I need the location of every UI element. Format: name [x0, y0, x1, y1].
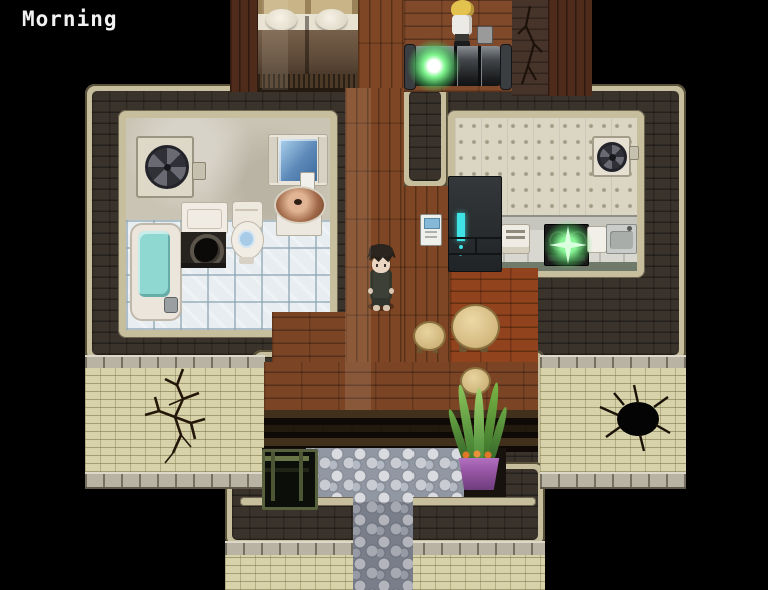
fan-blades-icon: [597, 142, 627, 172]
stool: [413, 321, 442, 354]
cobblestone-path: [353, 448, 413, 590]
bedroom-wall-left: [230, 0, 258, 92]
wall-crack: [125, 365, 235, 471]
wall-ledge-bottom: [540, 472, 686, 489]
washer-base: [181, 263, 226, 268]
toaster-slot: [506, 230, 525, 233]
player-foot: [373, 305, 380, 311]
bed-foot-shadow: [258, 88, 358, 92]
machine-band: [478, 46, 481, 86]
wall-ledge-bottom: [85, 472, 265, 489]
crate-post: [299, 452, 303, 501]
toilet: [231, 201, 262, 264]
green-glow-orb: [406, 38, 462, 94]
table-top: [451, 304, 500, 350]
wall-hole: [590, 373, 682, 465]
intercom-buttons: [425, 236, 437, 238]
intercom-screen: [424, 218, 440, 229]
player-eye: [376, 264, 378, 267]
sink-drain: [294, 199, 302, 205]
fridge-divider: [449, 253, 501, 255]
top-wall-cracked: [512, 0, 548, 96]
exterior-wall-right: [540, 355, 686, 485]
glowing-machine[interactable]: [404, 42, 510, 90]
washing-machine: [181, 202, 226, 268]
intercom-panel: [420, 214, 442, 246]
fan-cord: [192, 162, 206, 180]
washer-top: [181, 202, 228, 234]
pillow: [316, 9, 347, 30]
bedroom-floor-strip: [358, 0, 404, 92]
bathtub-water: [138, 231, 170, 297]
bathroom-vent-fan: [136, 136, 194, 198]
wall-column-hall-kitchen: [402, 84, 448, 188]
beds: [258, 0, 358, 92]
intercom-buttons: [425, 231, 437, 233]
bathtub-faucet: [164, 297, 178, 313]
plant-pot: [456, 458, 502, 490]
fridge-light-dot: [459, 245, 463, 249]
kitchen-sink: [606, 224, 637, 254]
path-shade: [353, 502, 413, 590]
player-hand: [368, 288, 373, 294]
top-wall-right: [548, 0, 592, 96]
sink-basin: [610, 231, 633, 249]
player-character[interactable]: [364, 244, 398, 312]
refrigerator: [448, 176, 502, 272]
potted-plant: [452, 382, 506, 494]
player-hair-top: [369, 244, 393, 257]
pillow: [266, 9, 297, 30]
player-eye: [384, 264, 386, 267]
player-body: [370, 270, 392, 300]
mirror-side-panel: [318, 137, 327, 183]
stool-top: [413, 321, 446, 351]
fan-blades-icon: [145, 145, 189, 189]
game-viewport[interactable]: Morning: [0, 0, 768, 590]
time-of-day-label: Morning: [22, 7, 118, 31]
fan-cord: [629, 146, 639, 160]
mirror-side-panel: [269, 137, 278, 183]
fridge-divider: [475, 239, 477, 253]
sink-faucet: [627, 226, 632, 231]
exterior-wall-left: [85, 355, 265, 485]
bathtub: [130, 223, 182, 321]
toaster: [501, 224, 530, 254]
crate[interactable]: [262, 449, 318, 510]
crate-post: [271, 452, 275, 501]
sink-bowl: [274, 186, 326, 224]
wall-crack: [514, 2, 546, 92]
toilet-base: [239, 257, 254, 264]
toaster-slot: [506, 236, 525, 239]
player-foot: [383, 305, 390, 311]
player-hand: [389, 288, 394, 294]
washer-front: [181, 232, 226, 263]
machine-cap: [500, 44, 512, 90]
dining-table: [451, 304, 496, 356]
toilet-bowl: [231, 221, 264, 259]
washer-lid: [187, 209, 222, 229]
tank-lid-line: [235, 209, 258, 211]
bathroom-mirror: [268, 134, 328, 186]
bathroom-sink: [272, 186, 324, 236]
npc-body: [452, 15, 472, 35]
kitchen-vent-fan: [592, 136, 631, 177]
toilet-water: [238, 230, 255, 248]
